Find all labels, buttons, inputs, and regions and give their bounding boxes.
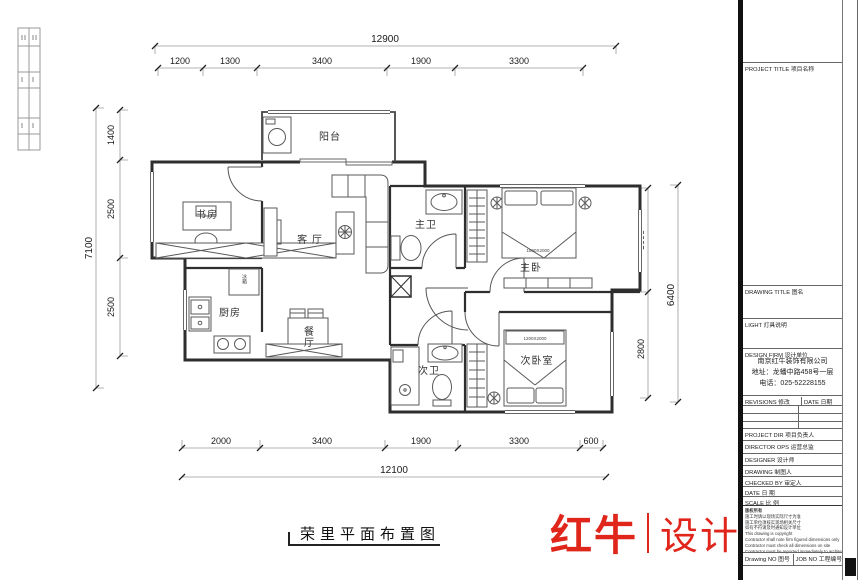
sheet-title: 荣里平面布置图 <box>288 520 440 546</box>
drawing-number-row: Drawing NO 图号 JOB NO 工程编号 <box>743 552 842 566</box>
row-project-dir: PROJECT DIR 项目负责人 <box>743 428 842 439</box>
dim-left-seg: 1400 <box>106 125 116 145</box>
ac-fan-icon <box>491 197 503 209</box>
room-label-study: 书房 <box>196 208 218 221</box>
dimension-chain-top: 12900 1200 1300 3400 1900 3300 <box>152 34 619 76</box>
dim-top-seg: 1300 <box>220 56 240 66</box>
master-bath-toilet <box>391 236 421 261</box>
logo-divider <box>647 513 649 553</box>
room-label-master-bed: 主卧 <box>520 261 542 274</box>
dim-left-seg: 2500 <box>106 297 116 317</box>
dim-top-seg: 3300 <box>509 56 529 66</box>
second-wardrobe <box>467 344 487 407</box>
note-line: Contractor must check all dimensions on … <box>745 543 842 549</box>
second-bed <box>504 330 566 406</box>
row-director-ops: DIRECTOR OPS 运营总监 <box>743 440 842 451</box>
second-bath-sink <box>428 344 462 362</box>
washing-machine <box>263 117 291 153</box>
master-bath-sink <box>426 190 462 214</box>
dim-left-seg: 2500 <box>106 199 116 219</box>
title-block: PROJECT TITLE 项目名称 DRAWING TITLE 图名 LIGH… <box>738 0 858 580</box>
firm-address: 地址：龙蟠中路458号一层 <box>743 368 842 379</box>
revisions-label: REVISIONS 修改 <box>745 397 802 405</box>
revisions-header: REVISIONS 修改 DATE 日期 <box>743 395 842 405</box>
dim-bottom-seg: 3400 <box>312 436 332 446</box>
dim-top-seg: 1900 <box>411 56 431 66</box>
logo-primary-text: 红牛 <box>550 502 638 563</box>
dim-top-seg: 3400 <box>312 56 332 66</box>
company-logo: 红牛 设计 <box>550 502 740 563</box>
second-bath-toilet <box>433 375 452 407</box>
sheet-title-text: 荣里平面布置图 <box>300 523 440 544</box>
ac-fan-icon <box>488 392 500 404</box>
titleblock-drawing-title: DRAWING TITLE 图名 <box>743 285 842 296</box>
room-label-kitchen: 厨房 <box>219 306 241 319</box>
room-label-living: 客 厅 <box>297 233 323 246</box>
room-label-balcony: 阳台 <box>319 130 341 143</box>
dim-bottom-seg: 3300 <box>509 436 529 446</box>
frame-edge-strip <box>18 28 40 150</box>
shower <box>391 347 419 405</box>
titleblock-notes: 版权所有 施工时请以现场实际尺寸为准 施工单位须核实现场相关尺寸 如有不符请及时… <box>743 505 842 554</box>
dim-left-total: 7100 <box>84 236 95 259</box>
ceiling-lamp-icon <box>339 226 352 239</box>
dim-bottom-seg: 2000 <box>211 436 231 446</box>
titleblock-light-row: LIGHT 灯具说明 <box>743 318 842 329</box>
note-line: Contractor shall note firm figured dimen… <box>745 537 842 543</box>
firm-name: 南京红牛装饰有限公司 <box>743 357 842 368</box>
floor-plan-canvas: 12900 1200 1300 3400 1900 3300 12100 200… <box>0 0 740 580</box>
dim-bottom-total: 12100 <box>380 465 408 476</box>
dimension-chain-left: 7100 1400 2500 2500 <box>84 105 128 391</box>
room-label-second-bed: 次卧室 <box>521 354 554 367</box>
job-no-label: JOB NO 工程编号 <box>794 554 842 565</box>
titleblock-project-title: PROJECT TITLE 项目名称 <box>743 62 842 73</box>
room-label-master-bath: 主卫 <box>415 219 437 231</box>
master-wardrobe <box>467 190 487 262</box>
row-designer: DESIGNER 设计师 <box>743 453 842 464</box>
room-label-second-bath: 次卫 <box>418 364 440 377</box>
dim-top-total: 12900 <box>371 34 399 45</box>
master-bed-cabinet <box>504 278 592 288</box>
title-bracket-mark <box>288 532 293 544</box>
dim-bottom-seg: 1900 <box>411 436 431 446</box>
firm-phone: 电话：025-52228155 <box>743 379 842 390</box>
second-bed-size-label: 1200X2000 <box>523 336 547 341</box>
dim-right-total: 6400 <box>666 283 677 306</box>
kitchen-counter <box>189 297 250 353</box>
title-block-divider <box>842 0 843 580</box>
room-label-dining: 餐厅 <box>302 325 314 348</box>
dim-bottom-seg: 600 <box>583 436 598 446</box>
logo-secondary-text: 设计 <box>660 505 740 560</box>
master-bed-size-label: 1800X2000 <box>526 248 550 253</box>
fridge-label: 冰箱 <box>241 273 247 285</box>
shaft-column <box>391 276 411 297</box>
ac-fan-icon <box>579 197 591 209</box>
date-label: DATE 日期 <box>802 397 842 405</box>
row-drawing: DRAWING 制图人 <box>743 465 842 476</box>
drawing-no-label: Drawing NO 图号 <box>745 554 794 565</box>
frame-corner-mark <box>845 558 856 576</box>
dim-top-seg: 1200 <box>170 56 190 66</box>
dimension-chain-bottom: 12100 2000 3400 1900 3300 600 <box>179 436 609 480</box>
dim-right-seg: 2800 <box>636 339 646 359</box>
